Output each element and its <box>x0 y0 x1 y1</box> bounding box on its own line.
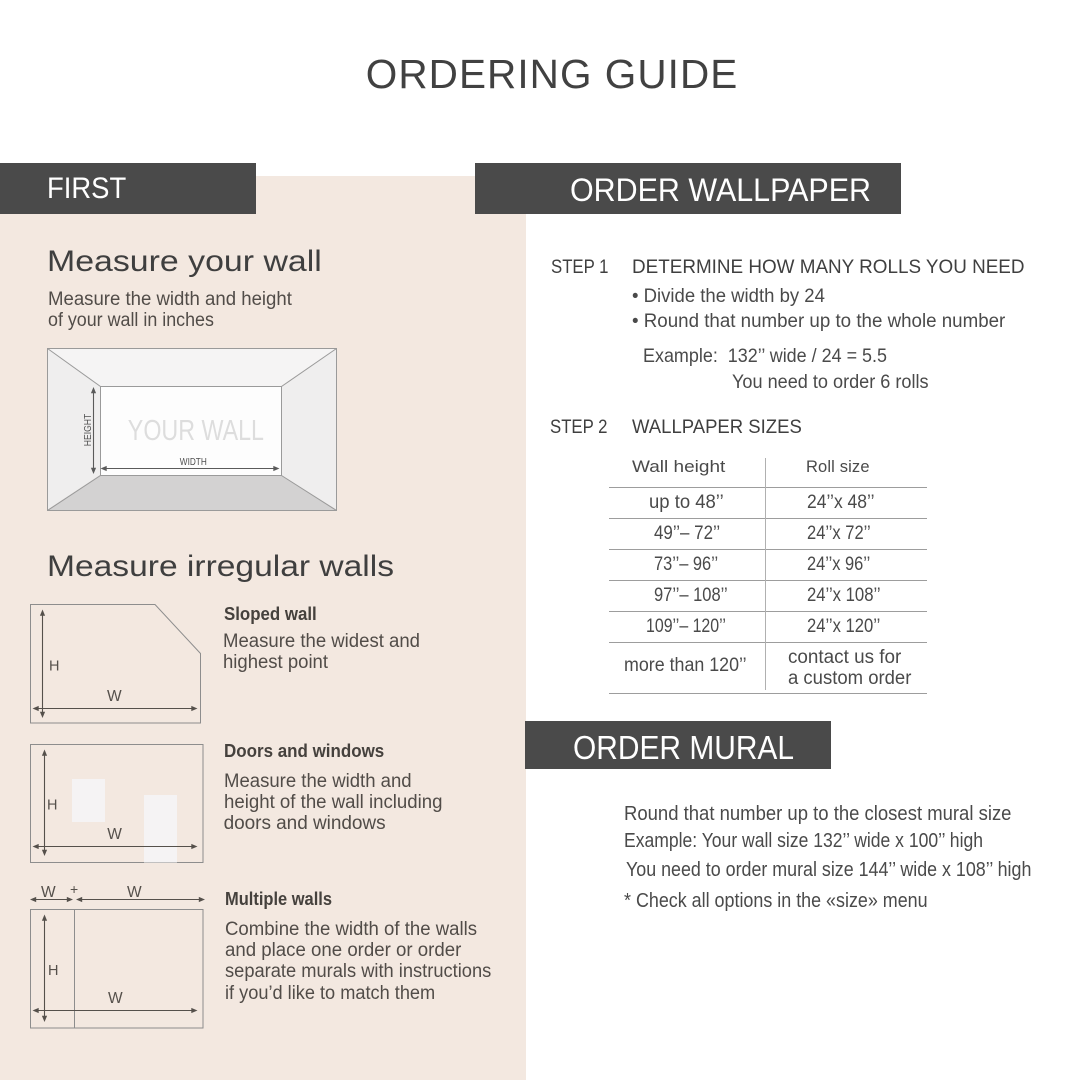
svg-text:+: + <box>70 881 78 897</box>
svg-text:W: W <box>108 990 123 1007</box>
svg-text:W: W <box>107 826 122 843</box>
svg-text:WIDTH: WIDTH <box>180 456 207 468</box>
svg-text:W: W <box>41 884 56 901</box>
svg-text:W: W <box>107 688 122 705</box>
svg-text:H: H <box>47 798 57 814</box>
svg-text:H: H <box>48 963 58 979</box>
svg-text:YOUR WALL: YOUR WALL <box>128 415 264 447</box>
svg-text:W: W <box>127 884 142 901</box>
svg-text:H: H <box>49 659 59 675</box>
svg-text:HEIGHT: HEIGHT <box>82 413 94 446</box>
